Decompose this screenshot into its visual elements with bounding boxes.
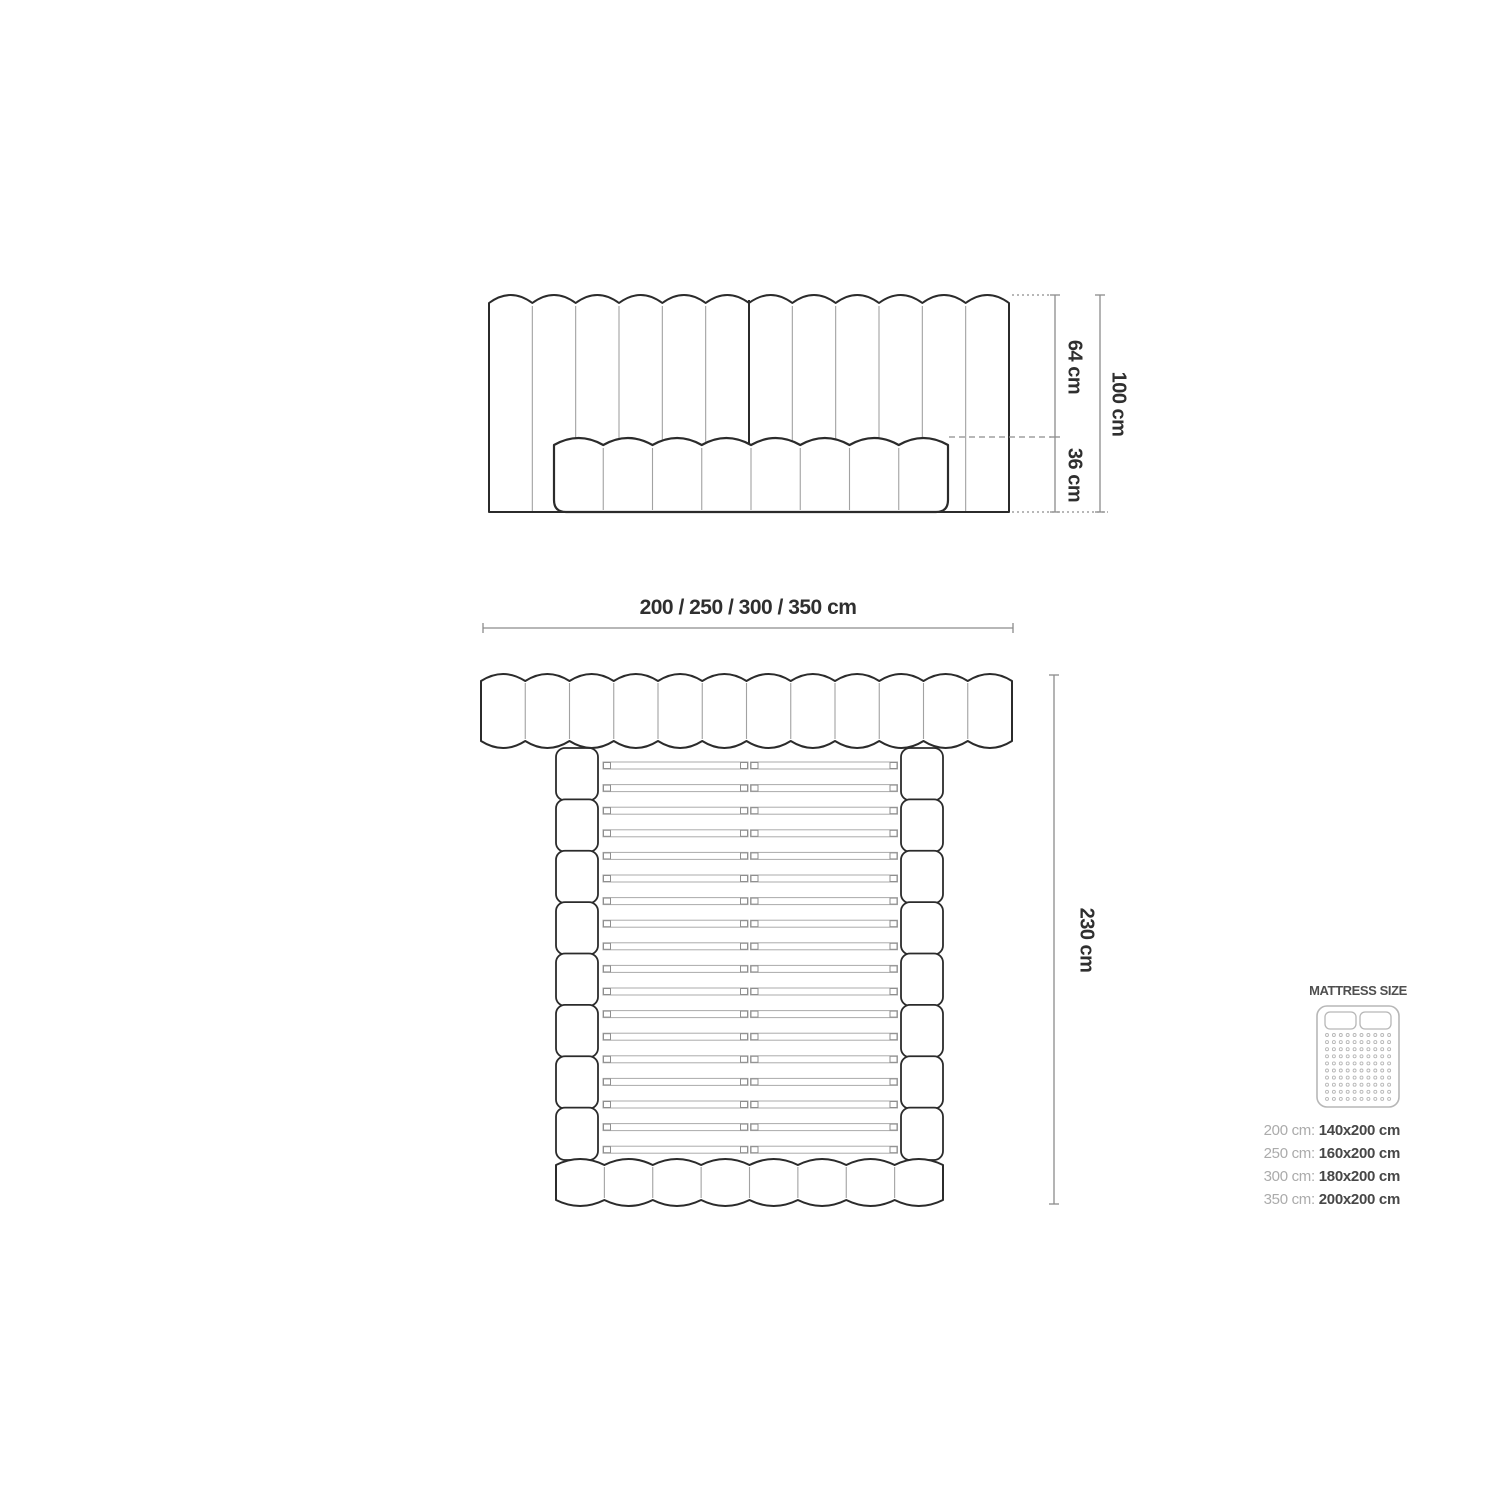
plan-view-dimensions [1049,675,1059,1204]
legend-row: 350 cm: 200x200 cm [1255,1188,1400,1211]
mattress-size-value: 180x200 cm [1319,1168,1400,1185]
width-options-label: 200 / 250 / 300 / 350 cm [640,596,857,620]
mattress-size-value: 200x200 cm [1319,1191,1400,1208]
mattress-size-value: 160x200 cm [1319,1145,1400,1162]
frame-size-label: 200 cm: [1264,1122,1315,1139]
length-label: 230 cm [1075,908,1098,973]
mattress-icon-group [1317,1006,1399,1107]
front-view-group [489,295,1009,512]
slat-base-group [603,762,898,1153]
plan-view-group [483,623,1013,633]
bed-dimensions-diagram: 64 cm 36 cm 100 cm 200 / 250 / 300 / 350… [0,0,1500,1500]
legend-row: 250 cm: 160x200 cm [1255,1142,1400,1165]
legend-row: 300 cm: 180x200 cm [1255,1165,1400,1188]
frame-size-label: 350 cm: [1264,1191,1315,1208]
legend-row: 200 cm: 140x200 cm [1255,1119,1400,1142]
mattress-size-value: 140x200 cm [1319,1122,1400,1139]
total-height-label: 100 cm [1107,372,1130,437]
plan-headboard-group [481,674,1012,748]
upper-height-label: 64 cm [1063,340,1086,394]
frame-size-label: 250 cm: [1264,1145,1315,1162]
footboard-group [556,1159,943,1206]
lower-height-label: 36 cm [1063,448,1086,502]
mattress-size-legend: 200 cm: 140x200 cm 250 cm: 160x200 cm 30… [1255,1119,1400,1211]
diagram-drawing [0,0,1500,1500]
frame-size-label: 300 cm: [1264,1168,1315,1185]
mattress-size-title: MATTRESS SIZE [1309,983,1407,998]
